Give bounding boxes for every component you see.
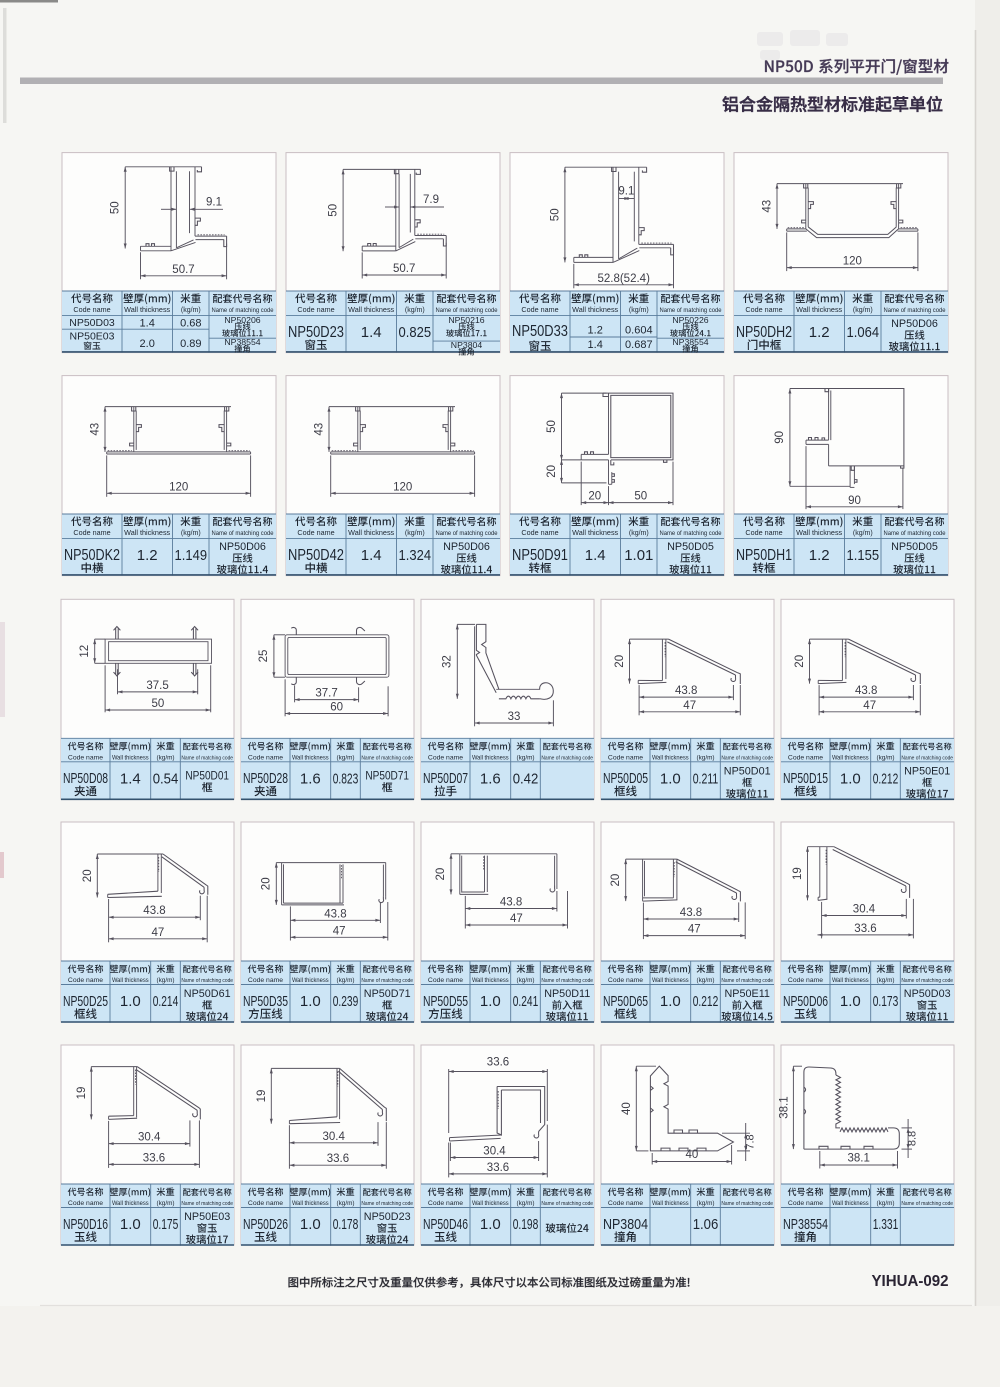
svg-text:19: 19 xyxy=(792,867,804,880)
svg-text:Code name: Code name xyxy=(788,1200,823,1207)
svg-text:33: 33 xyxy=(508,711,521,723)
svg-text:1.0: 1.0 xyxy=(300,1216,321,1233)
svg-text:Wall thickness: Wall thickness xyxy=(124,530,171,537)
svg-text:20: 20 xyxy=(261,877,273,890)
svg-text:32: 32 xyxy=(442,655,454,668)
svg-text:Wall thickness: Wall thickness xyxy=(472,754,509,761)
svg-text:(kg/m): (kg/m) xyxy=(156,754,174,761)
svg-text:43: 43 xyxy=(314,423,326,436)
svg-text:33.6: 33.6 xyxy=(143,1152,165,1164)
svg-text:19: 19 xyxy=(256,1090,268,1103)
svg-text:1.4: 1.4 xyxy=(120,770,141,787)
svg-text:47: 47 xyxy=(863,700,876,712)
svg-text:50: 50 xyxy=(634,491,647,503)
svg-text:Name of matching code: Name of matching code xyxy=(884,307,947,314)
svg-text:37.5: 37.5 xyxy=(146,680,168,692)
svg-text:NP50E11: NP50E11 xyxy=(724,988,769,1000)
svg-text:Wall thickness: Wall thickness xyxy=(796,307,843,314)
svg-text:33.6: 33.6 xyxy=(327,1153,349,1165)
svg-text:(kg/m): (kg/m) xyxy=(405,307,425,314)
svg-text:(kg/m): (kg/m) xyxy=(336,754,354,761)
svg-text:(kg/m): (kg/m) xyxy=(516,1200,534,1207)
svg-text:NP3804: NP3804 xyxy=(451,340,483,350)
svg-text:19: 19 xyxy=(76,1087,88,1100)
svg-text:Name of matching code: Name of matching code xyxy=(660,307,723,314)
svg-text:Name of matching code: Name of matching code xyxy=(901,978,953,984)
svg-text:NP50D55: NP50D55 xyxy=(423,993,468,1010)
svg-text:Code name: Code name xyxy=(521,305,558,314)
svg-text:Code name: Code name xyxy=(248,977,283,984)
svg-text:Wall thickness: Wall thickness xyxy=(652,1200,689,1207)
svg-text:Code name: Code name xyxy=(68,754,103,761)
svg-text:50.7: 50.7 xyxy=(172,264,194,276)
svg-text:43.8: 43.8 xyxy=(680,907,702,919)
svg-text:30.4: 30.4 xyxy=(853,904,876,916)
svg-text:Code name: Code name xyxy=(73,305,110,314)
svg-text:Code name: Code name xyxy=(68,977,103,984)
svg-text:Wall thickness: Wall thickness xyxy=(292,1200,329,1207)
svg-text:Name of matching code: Name of matching code xyxy=(436,307,499,314)
svg-text:Wall thickness: Wall thickness xyxy=(124,307,171,314)
svg-text:8.8: 8.8 xyxy=(907,1131,919,1146)
svg-text:25: 25 xyxy=(258,650,270,663)
svg-text:(kg/m): (kg/m) xyxy=(853,530,873,537)
svg-text:0.823: 0.823 xyxy=(333,770,359,787)
svg-text:NP50DK2: NP50DK2 xyxy=(64,547,120,564)
svg-text:NP50D01: NP50D01 xyxy=(724,766,771,778)
svg-text:Wall thickness: Wall thickness xyxy=(796,530,843,537)
svg-text:2.0: 2.0 xyxy=(140,338,155,350)
svg-text:NP50D11: NP50D11 xyxy=(544,988,590,1000)
svg-text:1.6: 1.6 xyxy=(480,770,501,787)
svg-text:20: 20 xyxy=(546,465,558,478)
svg-text:7.9: 7.9 xyxy=(423,194,439,206)
svg-text:120: 120 xyxy=(169,481,188,493)
svg-text:9.1: 9.1 xyxy=(618,186,634,198)
svg-text:NP50D35: NP50D35 xyxy=(243,993,288,1010)
svg-text:NP50D25: NP50D25 xyxy=(63,993,108,1010)
svg-text:20: 20 xyxy=(794,655,806,668)
svg-text:Code name: Code name xyxy=(248,1200,283,1207)
svg-text:1.0: 1.0 xyxy=(840,770,861,787)
svg-text:NP50D65: NP50D65 xyxy=(603,993,648,1010)
svg-text:Name of matching code: Name of matching code xyxy=(436,530,499,537)
svg-text:(kg/m): (kg/m) xyxy=(516,977,534,984)
svg-text:0.198: 0.198 xyxy=(513,1216,539,1233)
svg-text:Wall thickness: Wall thickness xyxy=(112,1200,149,1207)
svg-text:47: 47 xyxy=(510,913,523,925)
svg-text:Wall thickness: Wall thickness xyxy=(292,977,329,984)
svg-text:1.2: 1.2 xyxy=(809,324,830,341)
svg-text:NP50D07: NP50D07 xyxy=(423,770,468,787)
svg-text:(kg/m): (kg/m) xyxy=(876,754,894,761)
svg-text:NP50D28: NP50D28 xyxy=(243,770,288,787)
svg-text:Wall thickness: Wall thickness xyxy=(652,754,689,761)
svg-text:Name of matching code: Name of matching code xyxy=(541,755,593,761)
svg-text:(kg/m): (kg/m) xyxy=(876,977,894,984)
svg-text:1.324: 1.324 xyxy=(399,547,432,564)
svg-text:NP50E03: NP50E03 xyxy=(70,331,115,343)
svg-text:Name of matching code: Name of matching code xyxy=(901,755,953,761)
svg-text:(kg/m): (kg/m) xyxy=(696,977,714,984)
svg-text:20: 20 xyxy=(588,491,601,503)
svg-text:NP50D05: NP50D05 xyxy=(667,541,714,553)
svg-text:Code name: Code name xyxy=(428,977,463,984)
svg-text:Wall thickness: Wall thickness xyxy=(292,754,329,761)
svg-text:38.1: 38.1 xyxy=(848,1153,870,1165)
svg-text:NP50DH1: NP50DH1 xyxy=(736,547,792,564)
svg-text:Code name: Code name xyxy=(248,754,283,761)
svg-text:NP3804: NP3804 xyxy=(603,1216,648,1233)
svg-text:NP50D23: NP50D23 xyxy=(364,1211,411,1223)
svg-text:38.1: 38.1 xyxy=(778,1096,790,1118)
svg-text:0.89: 0.89 xyxy=(180,338,201,350)
svg-text:(kg/m): (kg/m) xyxy=(696,1200,714,1207)
svg-text:1.0: 1.0 xyxy=(300,993,321,1010)
svg-text:Name of matching code: Name of matching code xyxy=(181,755,233,761)
svg-text:1.149: 1.149 xyxy=(175,547,208,564)
svg-text:50: 50 xyxy=(152,698,165,710)
svg-text:1.6: 1.6 xyxy=(300,770,321,787)
svg-text:Wall thickness: Wall thickness xyxy=(832,754,869,761)
svg-text:(kg/m): (kg/m) xyxy=(336,977,354,984)
svg-text:Code name: Code name xyxy=(745,305,782,314)
svg-text:1.0: 1.0 xyxy=(840,993,861,1010)
svg-text:1.2: 1.2 xyxy=(809,547,830,564)
svg-text:20: 20 xyxy=(614,655,626,668)
svg-text:43.8: 43.8 xyxy=(855,685,877,697)
svg-text:NP50D03: NP50D03 xyxy=(69,317,115,329)
svg-text:NP50D15: NP50D15 xyxy=(783,770,828,787)
svg-text:20: 20 xyxy=(435,868,447,881)
svg-text:9.1: 9.1 xyxy=(206,196,222,208)
svg-text:0.687: 0.687 xyxy=(625,339,653,351)
svg-text:0.175: 0.175 xyxy=(153,1216,179,1233)
svg-text:NP50D06: NP50D06 xyxy=(219,541,266,553)
svg-text:NP38554: NP38554 xyxy=(672,337,708,347)
svg-text:NP50206: NP50206 xyxy=(224,315,260,325)
svg-text:0.211: 0.211 xyxy=(693,770,719,787)
svg-text:0.239: 0.239 xyxy=(333,993,359,1010)
svg-text:0.212: 0.212 xyxy=(873,770,899,787)
svg-text:1.331: 1.331 xyxy=(873,1216,899,1233)
svg-text:(kg/m): (kg/m) xyxy=(181,530,201,537)
svg-text:Wall thickness: Wall thickness xyxy=(472,1200,509,1207)
svg-text:43: 43 xyxy=(762,200,774,213)
svg-text:Wall thickness: Wall thickness xyxy=(112,754,149,761)
svg-text:(kg/m): (kg/m) xyxy=(853,307,873,314)
svg-text:20: 20 xyxy=(82,869,94,882)
svg-text:1.06: 1.06 xyxy=(693,1216,719,1233)
svg-text:(kg/m): (kg/m) xyxy=(876,1200,894,1207)
svg-text:(kg/m): (kg/m) xyxy=(696,754,714,761)
svg-text:Wall thickness: Wall thickness xyxy=(572,530,619,537)
svg-text:Code name: Code name xyxy=(297,305,334,314)
svg-text:1.01: 1.01 xyxy=(624,547,653,564)
svg-text:43.8: 43.8 xyxy=(500,897,522,909)
svg-text:0.241: 0.241 xyxy=(513,993,539,1010)
svg-text:NP50D46: NP50D46 xyxy=(423,1216,468,1233)
svg-text:0.68: 0.68 xyxy=(180,318,201,330)
svg-text:NP50D05: NP50D05 xyxy=(603,770,648,787)
svg-text:NP50E03: NP50E03 xyxy=(184,1211,230,1223)
svg-text:20: 20 xyxy=(610,874,622,887)
svg-text:Code name: Code name xyxy=(608,754,643,761)
svg-text:Name of matching code: Name of matching code xyxy=(884,530,947,537)
svg-text:NP50D71: NP50D71 xyxy=(365,770,409,782)
svg-text:90: 90 xyxy=(848,495,861,507)
svg-text:52.8(52.4): 52.8(52.4) xyxy=(597,273,650,285)
svg-text:Wall thickness: Wall thickness xyxy=(572,307,619,314)
svg-text:1.4: 1.4 xyxy=(361,547,382,564)
svg-text:90: 90 xyxy=(774,431,786,444)
svg-text:Name of matching code: Name of matching code xyxy=(212,530,275,537)
svg-text:7.8: 7.8 xyxy=(745,1134,757,1149)
svg-text:30.4: 30.4 xyxy=(323,1131,346,1143)
svg-text:Code name: Code name xyxy=(788,977,823,984)
svg-text:47: 47 xyxy=(152,927,165,939)
svg-text:37.7: 37.7 xyxy=(315,688,337,700)
svg-text:50: 50 xyxy=(110,201,122,214)
svg-text:0.214: 0.214 xyxy=(153,993,179,1010)
svg-text:NP38554: NP38554 xyxy=(783,1216,828,1233)
svg-text:30.4: 30.4 xyxy=(138,1132,161,1144)
svg-text:Code name: Code name xyxy=(297,528,334,537)
svg-text:Code name: Code name xyxy=(73,528,110,537)
svg-text:Wall thickness: Wall thickness xyxy=(472,977,509,984)
svg-text:0.42: 0.42 xyxy=(513,770,539,787)
svg-text:NP50226: NP50226 xyxy=(672,315,708,325)
svg-text:Name of matching code: Name of matching code xyxy=(361,755,413,761)
svg-text:1.064: 1.064 xyxy=(847,324,880,341)
svg-text:(kg/m): (kg/m) xyxy=(156,977,174,984)
svg-text:1.4: 1.4 xyxy=(140,318,155,330)
svg-text:1.4: 1.4 xyxy=(585,547,606,564)
svg-text:Code name: Code name xyxy=(428,1200,463,1207)
svg-text:33.6: 33.6 xyxy=(487,1057,509,1069)
svg-text:(kg/m): (kg/m) xyxy=(516,754,534,761)
svg-text:1.0: 1.0 xyxy=(480,993,501,1010)
svg-text:Code name: Code name xyxy=(68,1200,103,1207)
svg-text:43.8: 43.8 xyxy=(143,905,165,917)
svg-text:1.0: 1.0 xyxy=(660,993,681,1010)
svg-text:120: 120 xyxy=(843,256,862,268)
svg-text:0.604: 0.604 xyxy=(625,325,653,337)
svg-text:43: 43 xyxy=(90,423,102,436)
svg-text:50: 50 xyxy=(546,420,558,433)
svg-text:Name of matching code: Name of matching code xyxy=(721,978,773,984)
svg-text:1.4: 1.4 xyxy=(361,324,382,341)
svg-text:Wall thickness: Wall thickness xyxy=(832,1200,869,1207)
svg-text:NP50D06: NP50D06 xyxy=(783,993,828,1010)
svg-text:Name of matching code: Name of matching code xyxy=(361,1201,413,1207)
svg-text:1.0: 1.0 xyxy=(120,993,141,1010)
svg-text:Name of matching code: Name of matching code xyxy=(901,1201,953,1207)
svg-text:Name of matching code: Name of matching code xyxy=(721,1201,773,1207)
svg-text:30.4: 30.4 xyxy=(483,1146,506,1158)
svg-text:0.173: 0.173 xyxy=(873,993,899,1010)
svg-text:Wall thickness: Wall thickness xyxy=(652,977,689,984)
svg-text:NP50D08: NP50D08 xyxy=(63,770,108,787)
svg-text:NP50D01: NP50D01 xyxy=(185,770,229,782)
svg-text:Code name: Code name xyxy=(608,977,643,984)
svg-text:1.4: 1.4 xyxy=(588,339,603,351)
svg-text:(kg/m): (kg/m) xyxy=(405,530,425,537)
svg-text:0.212: 0.212 xyxy=(693,993,719,1010)
svg-text:(kg/m): (kg/m) xyxy=(629,307,649,314)
svg-text:1.2: 1.2 xyxy=(588,325,603,337)
svg-text:YIHUA-092: YIHUA-092 xyxy=(872,1273,949,1290)
svg-text:NP50D71: NP50D71 xyxy=(364,988,411,1000)
svg-text:47: 47 xyxy=(688,924,701,936)
svg-text:(kg/m): (kg/m) xyxy=(181,307,201,314)
svg-text:1.0: 1.0 xyxy=(120,1216,141,1233)
svg-text:NP50D05: NP50D05 xyxy=(891,541,938,553)
svg-text:1.2: 1.2 xyxy=(137,547,158,564)
svg-text:Name of matching code: Name of matching code xyxy=(721,755,773,761)
svg-text:Name of matching code: Name of matching code xyxy=(212,307,275,314)
svg-text:Wall thickness: Wall thickness xyxy=(348,307,395,314)
svg-text:0.54: 0.54 xyxy=(153,770,179,787)
svg-text:Name of matching code: Name of matching code xyxy=(181,978,233,984)
svg-text:Wall thickness: Wall thickness xyxy=(348,530,395,537)
svg-text:33.6: 33.6 xyxy=(487,1162,509,1174)
svg-text:NP50216: NP50216 xyxy=(448,315,484,325)
svg-text:(kg/m): (kg/m) xyxy=(336,1200,354,1207)
svg-text:NP50D61: NP50D61 xyxy=(184,988,231,1000)
svg-text:1.0: 1.0 xyxy=(660,770,681,787)
svg-text:Name of matching code: Name of matching code xyxy=(541,978,593,984)
svg-text:Code name: Code name xyxy=(788,754,823,761)
svg-text:Code name: Code name xyxy=(521,528,558,537)
svg-text:NP50D91: NP50D91 xyxy=(512,547,568,564)
svg-text:1.0: 1.0 xyxy=(480,1216,501,1233)
svg-text:Name of matching code: Name of matching code xyxy=(541,1201,593,1207)
svg-text:1.155: 1.155 xyxy=(847,547,880,564)
svg-text:NP38554: NP38554 xyxy=(224,337,260,347)
svg-text:Wall thickness: Wall thickness xyxy=(832,977,869,984)
svg-text:NP50D06: NP50D06 xyxy=(443,541,490,553)
svg-text:0.178: 0.178 xyxy=(333,1216,359,1233)
svg-text:Name of matching code: Name of matching code xyxy=(660,530,723,537)
svg-text:43.8: 43.8 xyxy=(675,685,697,697)
svg-text:120: 120 xyxy=(393,481,412,493)
svg-text:47: 47 xyxy=(683,700,696,712)
svg-text:Code name: Code name xyxy=(608,1200,643,1207)
svg-text:NP50D16: NP50D16 xyxy=(63,1216,108,1233)
svg-text:40: 40 xyxy=(686,1149,699,1161)
svg-text:NP50D06: NP50D06 xyxy=(891,318,938,330)
svg-text:NP50D42: NP50D42 xyxy=(288,547,344,564)
svg-text:Name of matching code: Name of matching code xyxy=(361,978,413,984)
svg-text:(kg/m): (kg/m) xyxy=(156,1200,174,1207)
svg-text:12: 12 xyxy=(79,645,91,658)
svg-text:40: 40 xyxy=(621,1102,633,1115)
svg-text:NP50E01: NP50E01 xyxy=(904,766,950,778)
svg-text:60: 60 xyxy=(330,702,343,714)
svg-text:Code name: Code name xyxy=(745,528,782,537)
svg-text:NP50D23: NP50D23 xyxy=(288,324,344,341)
svg-text:NP50D26: NP50D26 xyxy=(243,1216,288,1233)
svg-text:33.6: 33.6 xyxy=(854,923,876,935)
svg-text:50.7: 50.7 xyxy=(393,263,415,275)
svg-text:50: 50 xyxy=(549,208,561,221)
svg-text:43.8: 43.8 xyxy=(324,908,346,920)
svg-text:47: 47 xyxy=(333,925,346,937)
svg-text:NP50D33: NP50D33 xyxy=(512,323,568,340)
svg-text:0.825: 0.825 xyxy=(399,324,432,341)
svg-text:Name of matching code: Name of matching code xyxy=(181,1201,233,1207)
svg-text:(kg/m): (kg/m) xyxy=(629,530,649,537)
svg-text:Wall thickness: Wall thickness xyxy=(112,977,149,984)
svg-text:NP50D03: NP50D03 xyxy=(904,988,951,1000)
svg-text:NP50DH2: NP50DH2 xyxy=(736,324,792,341)
svg-text:Code name: Code name xyxy=(428,754,463,761)
svg-text:50: 50 xyxy=(328,204,340,217)
